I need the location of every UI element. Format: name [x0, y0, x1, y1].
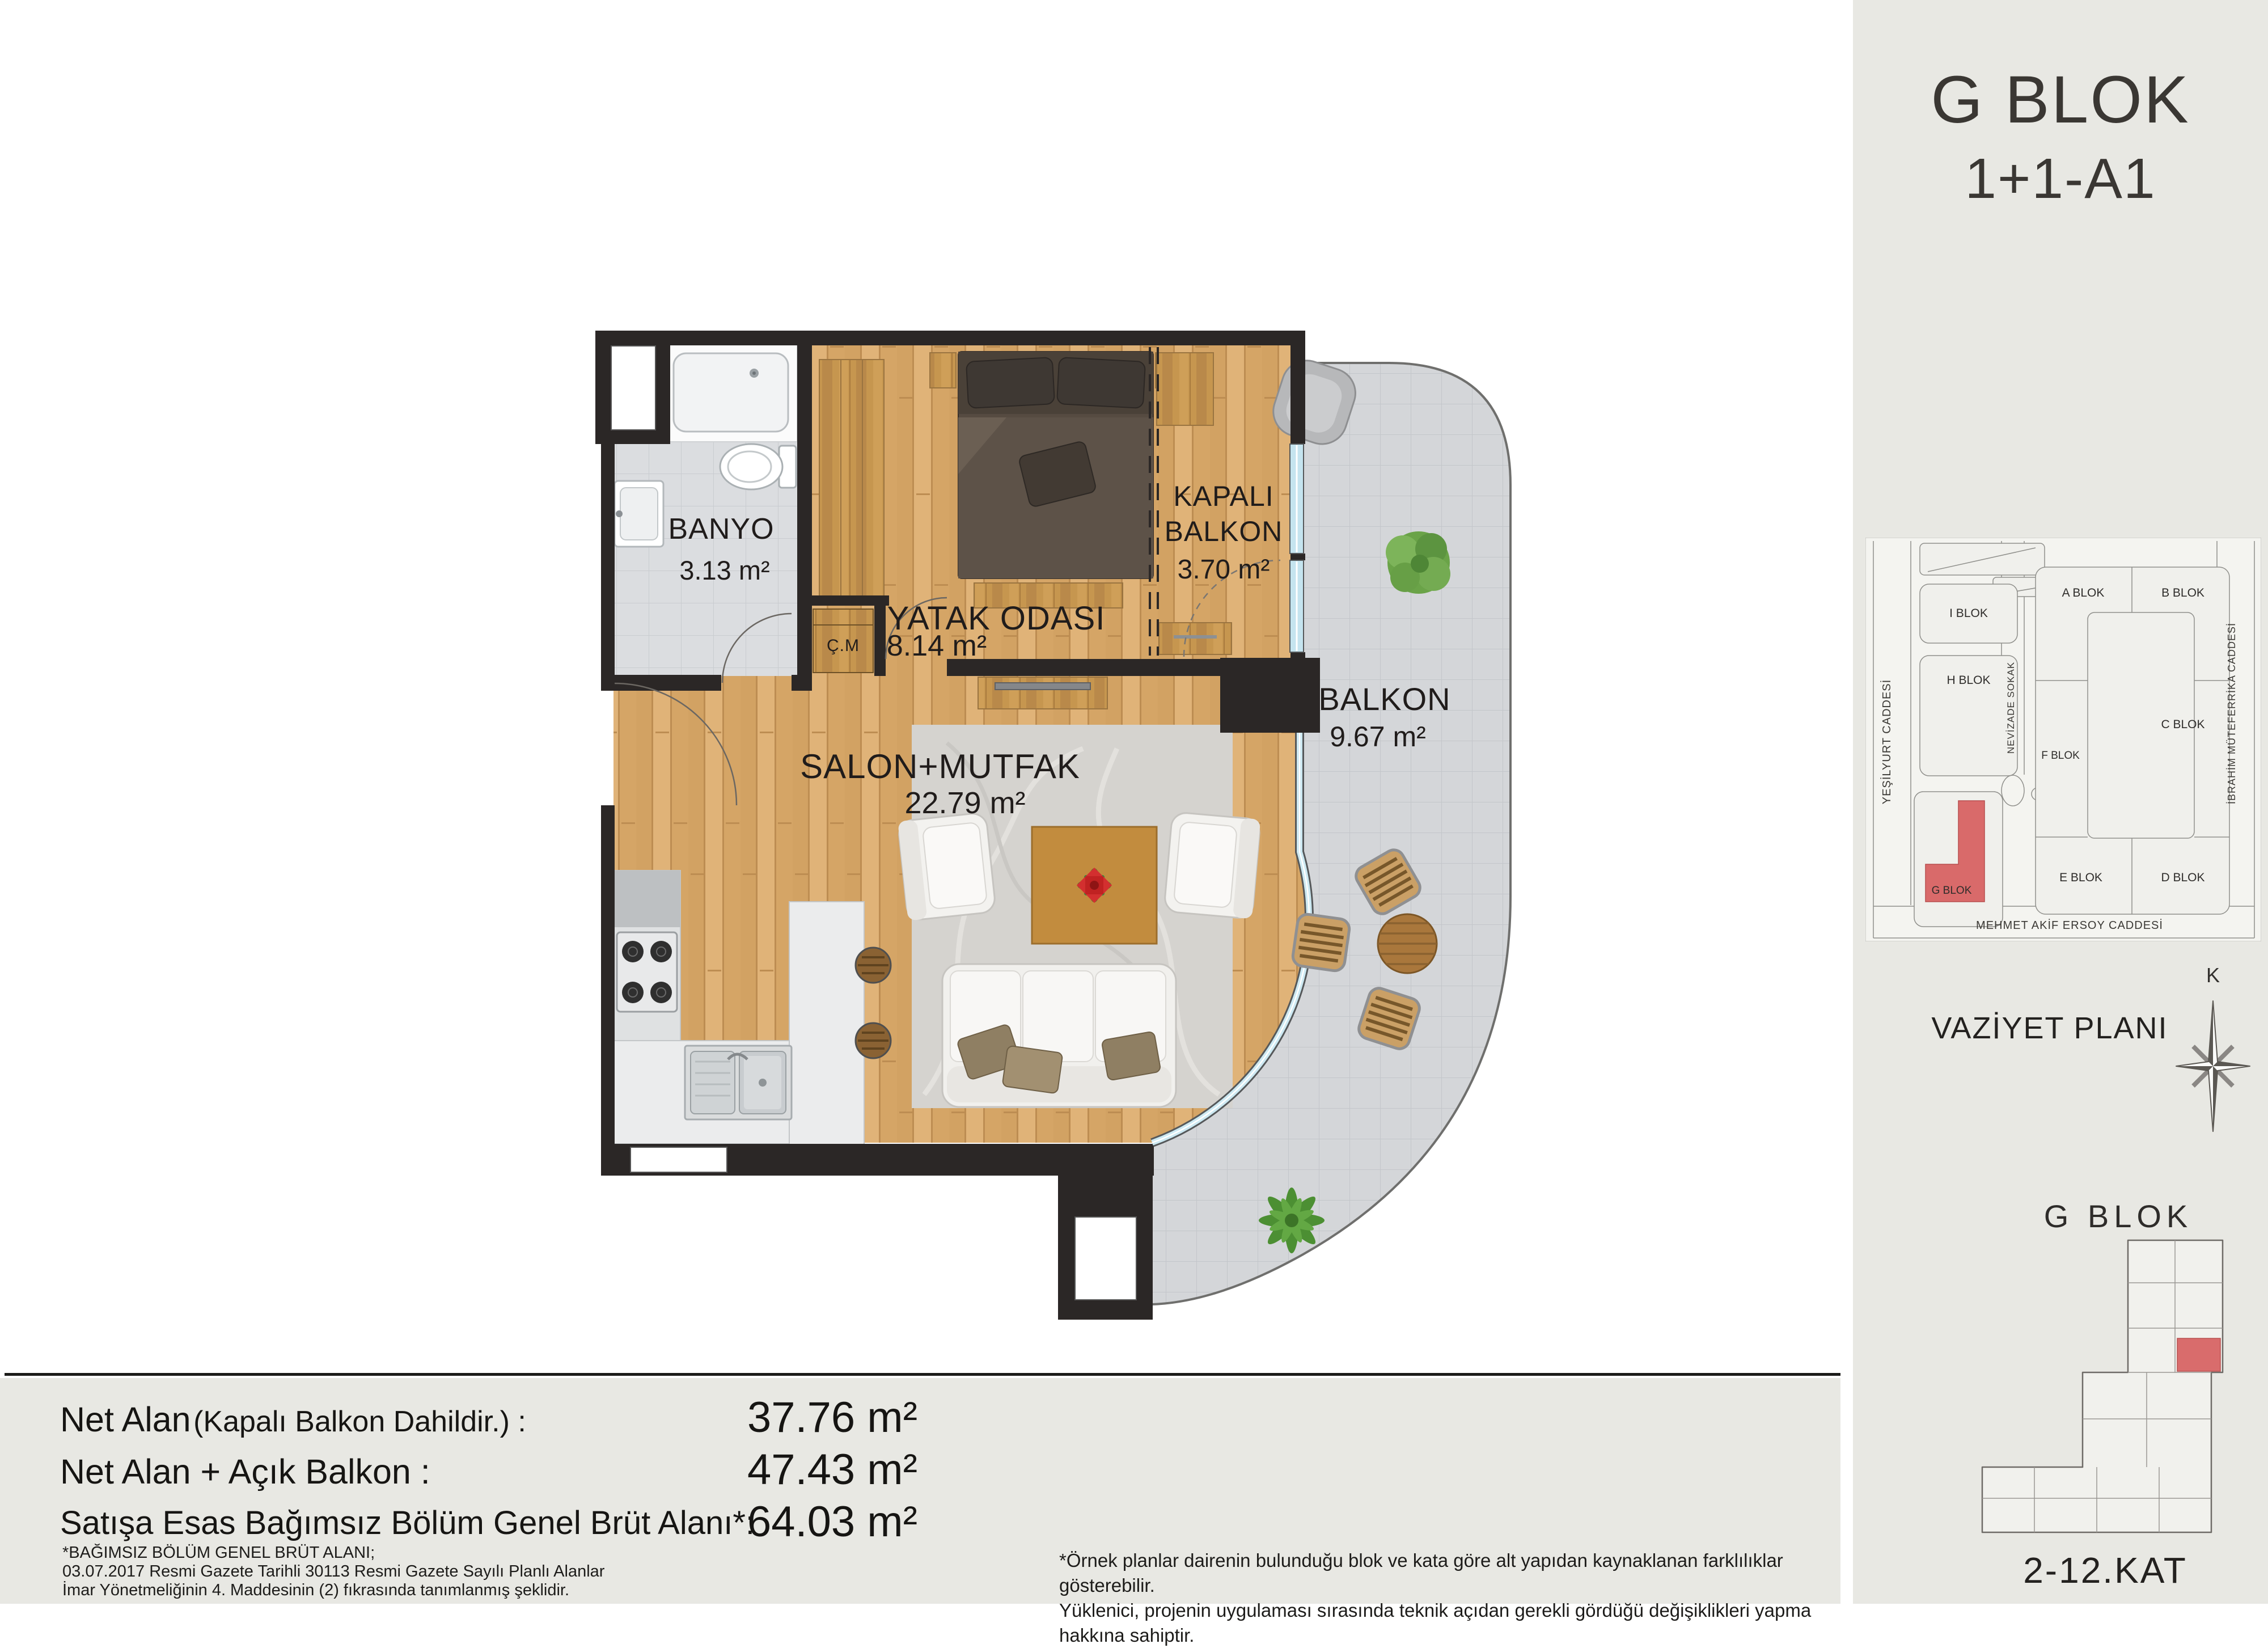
- map-label-c-blok: C BLOK: [2161, 718, 2204, 731]
- summary-label: Net Alan + Açık Balkon :: [60, 1452, 430, 1491]
- summary-label-note: (Kapalı Balkon Dahildir.) :: [193, 1405, 526, 1438]
- kitchen-sink: [685, 1046, 792, 1119]
- lower-window: [1075, 1217, 1136, 1300]
- yatak-odasi-area: 8.14 m²: [887, 629, 987, 662]
- map-label-g-blok: G BLOK: [1932, 885, 1972, 897]
- balkon-area: 9.67 m²: [1330, 721, 1426, 753]
- summary-row-net-alan: Net Alan (Kapalı Balkon Dahildir.) :: [60, 1400, 526, 1439]
- salon-label: SALON+MUTFAK: [800, 747, 1080, 785]
- section-block-title: G BLOK: [1988, 1198, 2249, 1235]
- kapali-balkon-label-1: KAPALI: [1173, 480, 1273, 512]
- footnote-line: *BAĞIMSIZ BÖLÜM GENEL BRÜT ALANI;: [62, 1544, 604, 1562]
- summary-row-brut-alan: Satışa Esas Bağımsız Bölüm Genel Brüt Al…: [60, 1504, 755, 1542]
- kb-desk: [1157, 353, 1213, 425]
- footnote-line: İmar Yönetmeliğinin 4. Maddesinin (2) fı…: [62, 1581, 604, 1600]
- disclaimer: *Örnek planlar dairenin bulunduğu blok v…: [1059, 1548, 1840, 1648]
- disclaimer-line: *Örnek planlar dairenin bulunduğu blok v…: [1059, 1548, 1840, 1598]
- coffee-table: [1032, 827, 1157, 944]
- wardrobe: [819, 360, 884, 599]
- palm-plant: [1259, 1188, 1325, 1253]
- street-ersoy: MEHMET AKİF ERSOY CADDESİ: [1976, 919, 2163, 932]
- map-label-h-blok: H BLOK: [1947, 674, 1990, 687]
- salon-area: 22.79 m²: [904, 786, 1025, 820]
- bed: [958, 352, 1153, 578]
- sofa: [942, 964, 1176, 1107]
- summary-row-acik-balkon: Net Alan + Açık Balkon :: [60, 1452, 430, 1491]
- living-room: [898, 677, 1260, 1108]
- map-label-i-blok: I BLOK: [1949, 607, 1988, 620]
- map-label-e-blok: E BLOK: [2059, 871, 2102, 884]
- summary-value-net-alan: 37.76 m²: [747, 1393, 917, 1442]
- sidebar: G BLOK 1+1-A1 I BLOK H BL: [1853, 0, 2268, 1604]
- banyo-label: BANYO: [668, 513, 774, 546]
- summary-label: Net Alan: [60, 1400, 191, 1439]
- bottom-wall-window: [631, 1147, 727, 1172]
- divider-line: [5, 1373, 1840, 1376]
- balkon-label: BALKON: [1318, 681, 1450, 717]
- toilet: [720, 444, 796, 489]
- kb-windows: [1290, 444, 1304, 652]
- banyo-area: 3.13 m²: [679, 555, 769, 585]
- stove: [617, 932, 677, 1012]
- map-label-b-blok: B BLOK: [2161, 586, 2204, 599]
- map-label-f-blok: F BLOK: [2041, 750, 2080, 762]
- summary-value-acik-balkon: 47.43 m²: [747, 1445, 917, 1494]
- site-plan-map: I BLOK H BLOK G BLOK A BLOK B BLOK C BLO…: [1865, 538, 2261, 941]
- disclaimer-line: Yüklenici, projenin uygulaması sırasında…: [1059, 1598, 1840, 1648]
- kitchen-island: [789, 902, 864, 1146]
- summary-label: Satışa Esas Bağımsız Bölüm Genel Brüt Al…: [60, 1505, 755, 1541]
- bathroom-sink: [615, 481, 663, 547]
- unit-highlight: [2177, 1338, 2220, 1371]
- area-summary: Net Alan (Kapalı Balkon Dahildir.) : 37.…: [0, 1378, 1840, 1604]
- floor-plan: BANYO 3.13 m² Ç.M YATAK ODASI 8.14 m² KA…: [584, 312, 1520, 1333]
- unit-type: 1+1-A1: [1853, 146, 2268, 212]
- armchair-left: [898, 812, 996, 920]
- street-muteferrika: İBRAHİM MÜTEFERRİKA CADDESİ: [2226, 623, 2237, 804]
- map-label-d-blok: D BLOK: [2161, 871, 2204, 884]
- cm-label: Ç.M: [827, 636, 860, 655]
- tree: [1386, 531, 1450, 594]
- compass-north-label: K: [2206, 964, 2220, 987]
- floor-range: 2-12.KAT: [1981, 1549, 2230, 1591]
- shower-tray: [663, 344, 797, 442]
- footnote-line: 03.07.2017 Resmi Gazete Tarihli 30113 Re…: [62, 1562, 604, 1581]
- street-nevizade: NEVİZADE SOKAK: [2005, 662, 2016, 754]
- balcony-chair: [1292, 913, 1351, 972]
- bedroom: [819, 352, 1182, 608]
- block-title: G BLOK: [1853, 61, 2268, 138]
- map-label-a-blok: A BLOK: [2062, 586, 2105, 599]
- armchair-right: [1164, 812, 1261, 919]
- tv-unit: [978, 677, 1107, 709]
- summary-value-brut-alan: 64.03 m²: [747, 1497, 917, 1546]
- kapali-balkon-label-2: BALKON: [1165, 515, 1283, 547]
- kapali-balkon-area: 3.70 m²: [1178, 555, 1270, 585]
- street-yesilyurt: YEŞİLYURT CADDESİ: [1880, 679, 1893, 804]
- compass: K: [2170, 958, 2256, 1140]
- nightstand-left: [930, 353, 956, 388]
- footnote: *BAĞIMSIZ BÖLÜM GENEL BRÜT ALANI; 03.07.…: [62, 1544, 604, 1600]
- building-key-plan: [1966, 1232, 2230, 1541]
- shaft-window: [611, 346, 655, 430]
